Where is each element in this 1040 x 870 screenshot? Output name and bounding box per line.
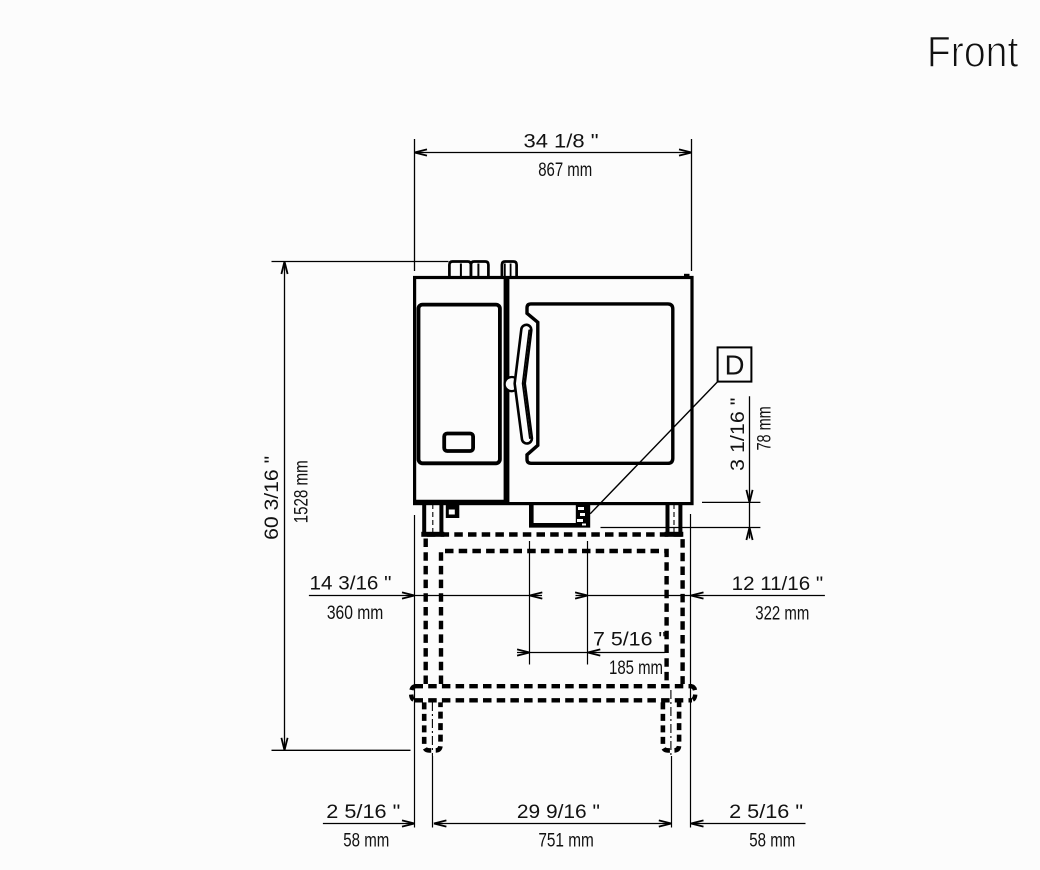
svg-text:3 1/16 ": 3 1/16 " bbox=[728, 397, 749, 471]
svg-text:360 mm: 360 mm bbox=[327, 603, 384, 624]
svg-text:Front: Front bbox=[927, 28, 1019, 76]
svg-text:14 3/16 ": 14 3/16 " bbox=[310, 573, 392, 594]
svg-text:D: D bbox=[725, 349, 745, 380]
svg-text:867 mm: 867 mm bbox=[538, 160, 592, 181]
svg-text:1528 mm: 1528 mm bbox=[292, 460, 313, 523]
svg-text:2 5/16 ": 2 5/16 " bbox=[326, 802, 400, 823]
svg-text:322 mm: 322 mm bbox=[755, 603, 809, 624]
svg-text:751 mm: 751 mm bbox=[538, 830, 594, 851]
svg-text:60 3/16 ": 60 3/16 " bbox=[262, 456, 283, 540]
svg-text:185 mm: 185 mm bbox=[609, 658, 663, 679]
svg-text:34 1/8 ": 34 1/8 " bbox=[524, 131, 599, 152]
svg-text:78 mm: 78 mm bbox=[754, 406, 775, 450]
svg-text:2 5/16 ": 2 5/16 " bbox=[729, 802, 803, 823]
svg-text:29 9/16 ": 29 9/16 " bbox=[517, 802, 600, 823]
svg-text:12 11/16 ": 12 11/16 " bbox=[732, 574, 824, 595]
svg-text:7 5/16 ": 7 5/16 " bbox=[593, 630, 666, 651]
svg-text:58 mm: 58 mm bbox=[749, 830, 795, 851]
svg-text:58 mm: 58 mm bbox=[343, 830, 389, 851]
